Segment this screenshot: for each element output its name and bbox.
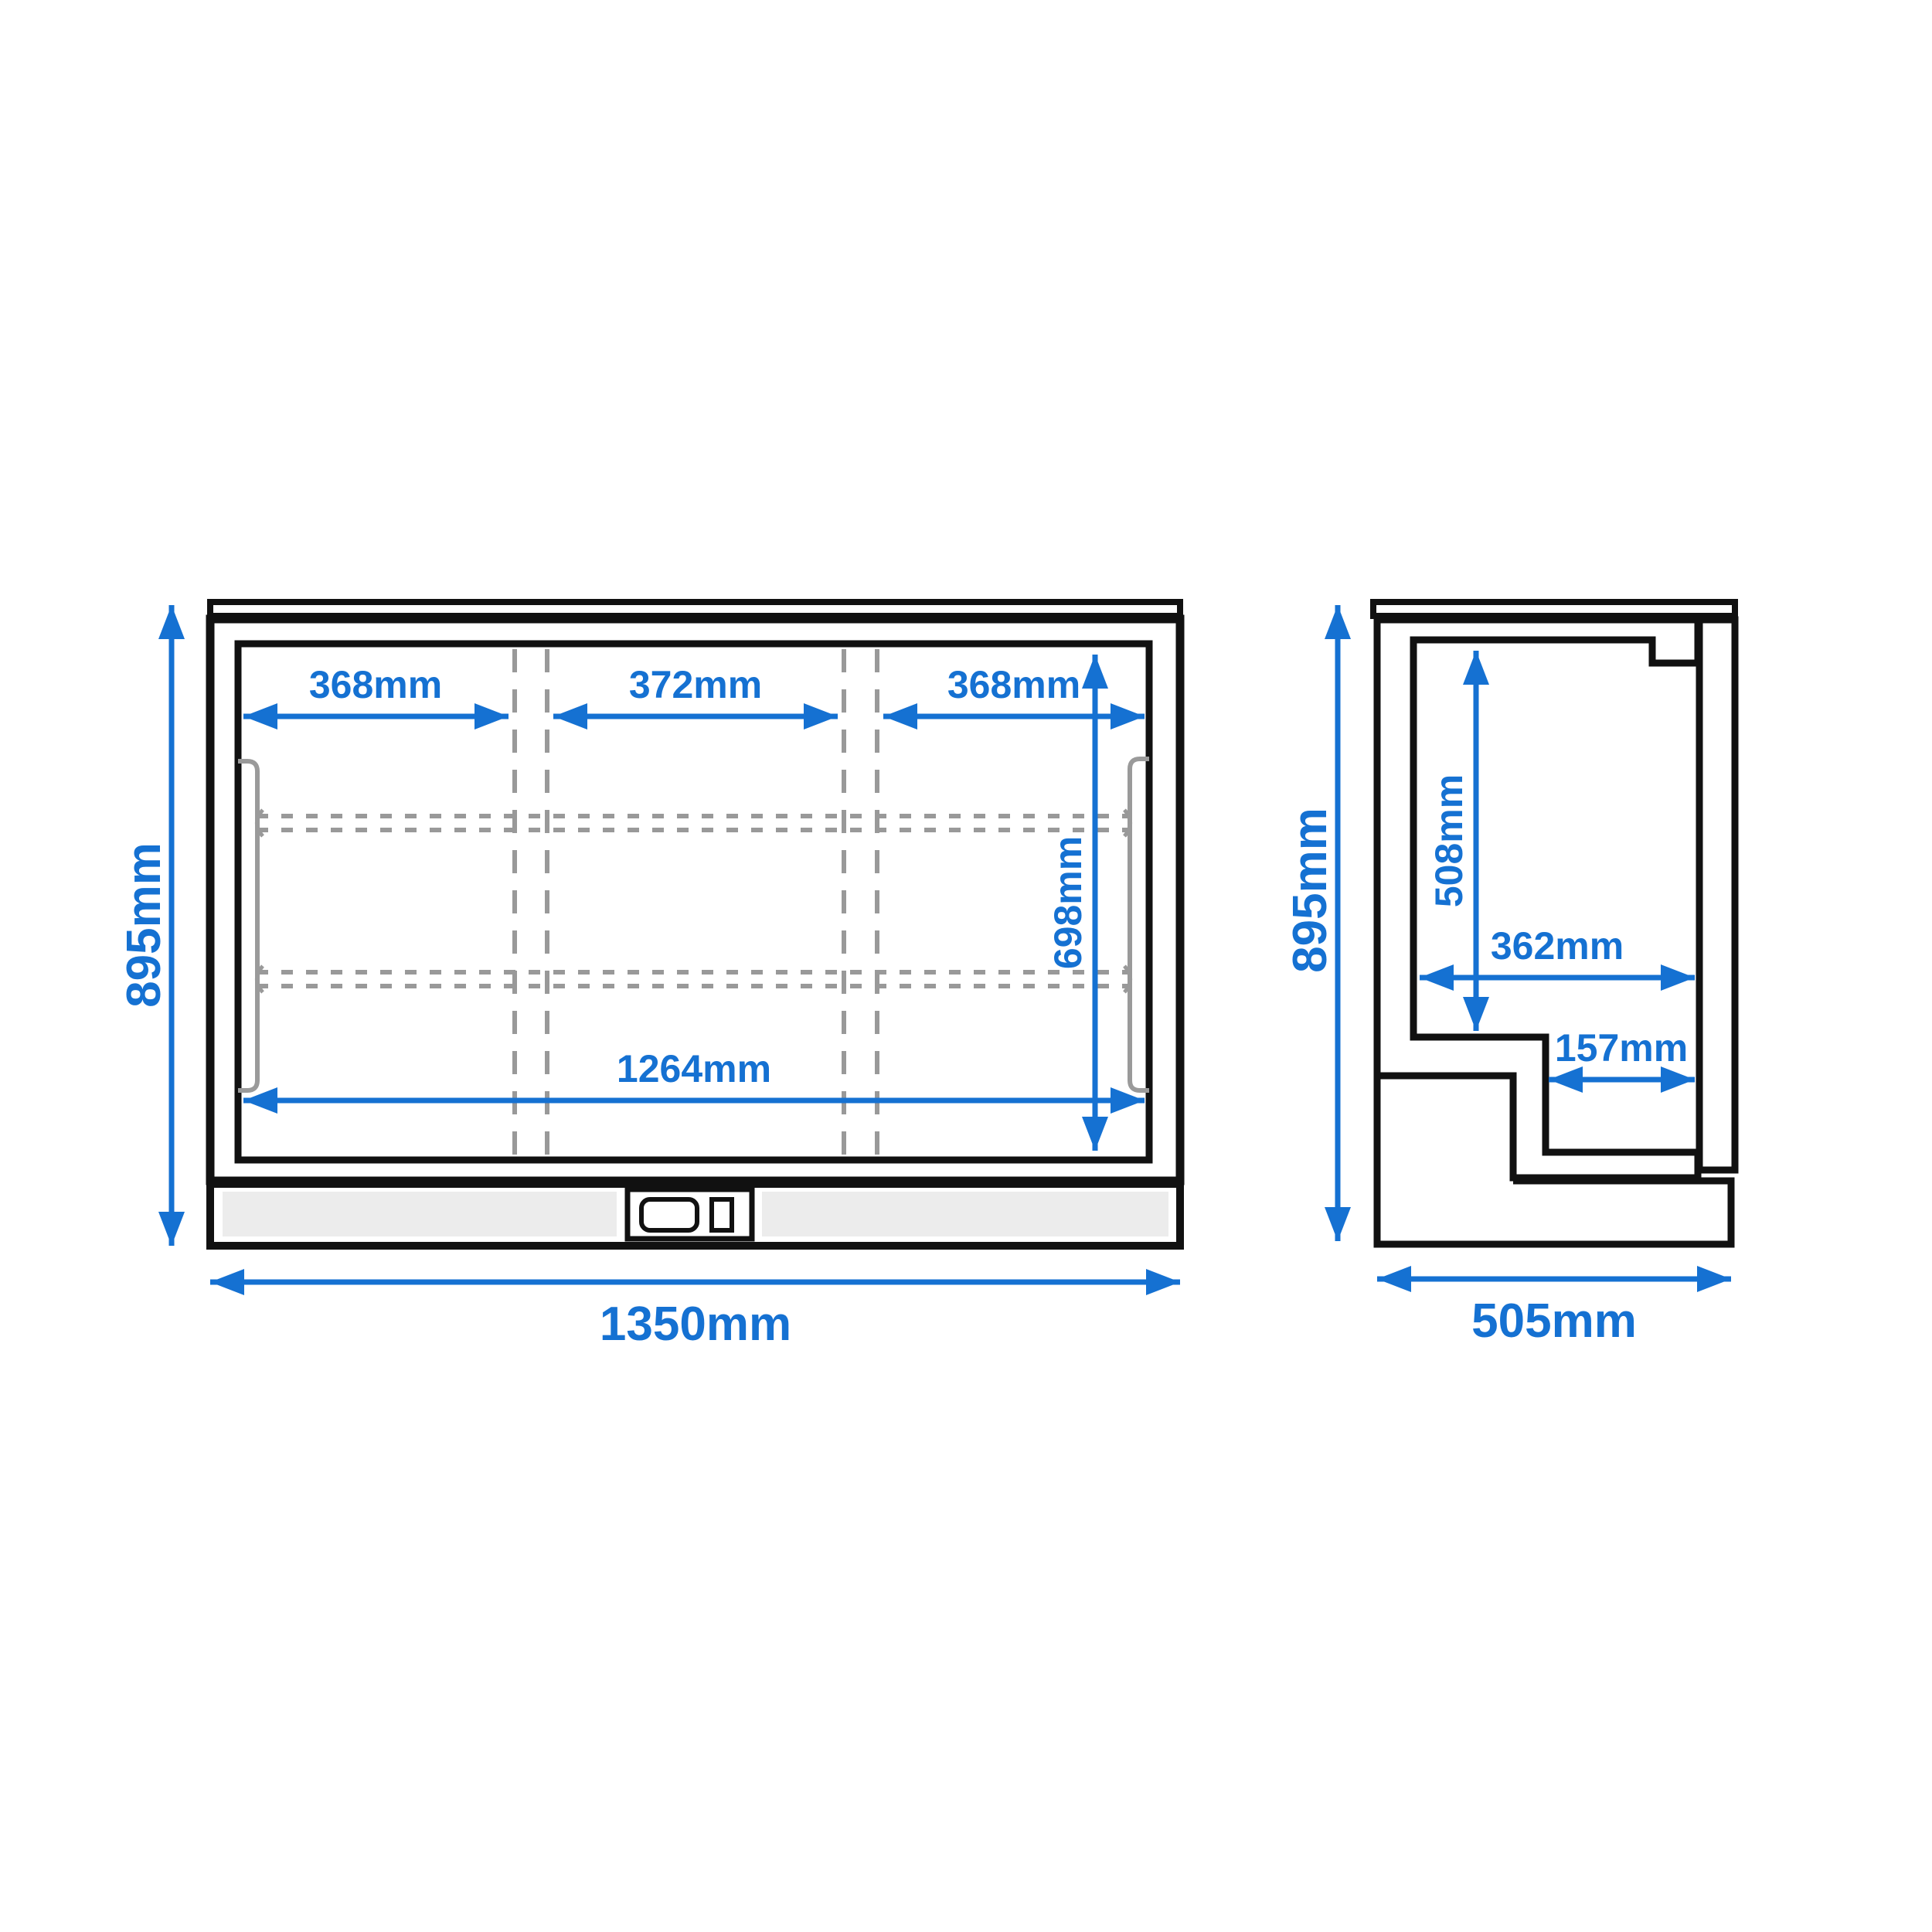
side-wall-section — [1377, 620, 1698, 1178]
front-interior-height-label: 698mm — [1046, 836, 1090, 969]
side-step-depth-label: 157mm — [1555, 1026, 1688, 1070]
dimension-drawing: 895mm 1350mm 368mm 372mm 368mm 698mm 126… — [0, 0, 1932, 1932]
front-overall-height-label: 895mm — [117, 842, 171, 1008]
side-door — [1699, 620, 1735, 1170]
front-section1-label: 368mm — [309, 663, 442, 706]
control-display — [641, 1199, 697, 1230]
front-section3-label: 368mm — [947, 663, 1080, 706]
side-overall-depth-label: 505mm — [1471, 1294, 1637, 1348]
dimensions: 895mm 1350mm 368mm 372mm 368mm 698mm 126… — [117, 605, 1731, 1351]
side-base-outline — [1377, 1076, 1731, 1244]
front-overall-width-label: 1350mm — [600, 1298, 791, 1351]
side-interior-height-label: 508mm — [1427, 774, 1471, 907]
side-interior-depth-label: 362mm — [1491, 924, 1624, 968]
side-view — [1373, 602, 1735, 1244]
kick-panel-inset-left — [223, 1192, 617, 1236]
side-lid — [1373, 602, 1735, 616]
front-interior-width-label: 1264mm — [617, 1047, 771, 1090]
diagram-canvas: 895mm 1350mm 368mm 372mm 368mm 698mm 126… — [0, 0, 1932, 1932]
side-overall-height-label: 895mm — [1284, 808, 1337, 973]
control-switch — [712, 1199, 732, 1230]
front-section2-label: 372mm — [629, 663, 762, 706]
kick-panel-inset-right — [762, 1192, 1168, 1236]
front-lid — [210, 602, 1180, 616]
